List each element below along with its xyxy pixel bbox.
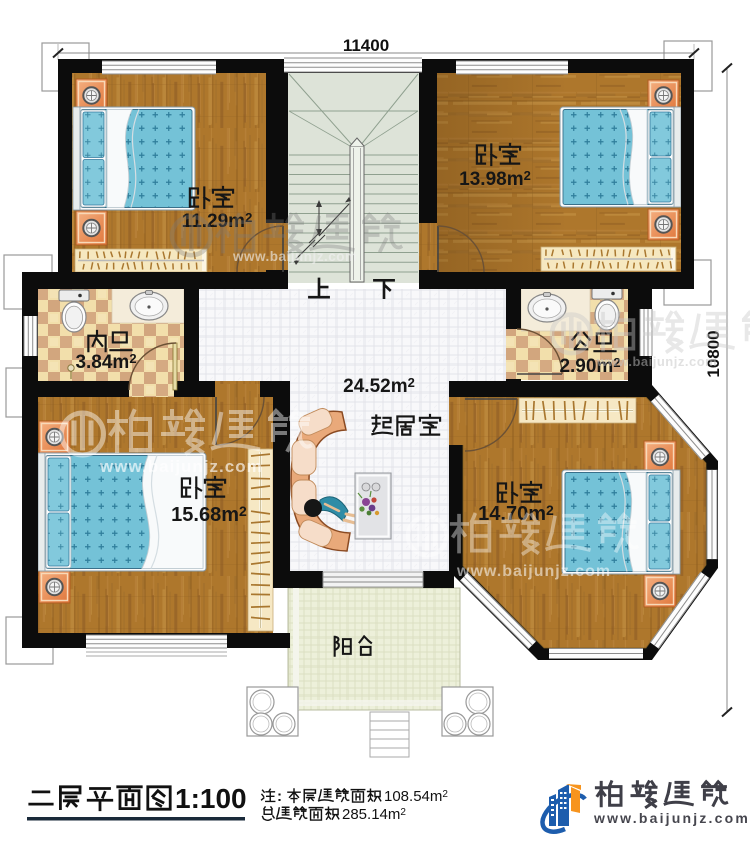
svg-text:www.baijunjz.com: www.baijunjz.com bbox=[456, 563, 611, 580]
svg-text:www.baijunjz.com: www.baijunjz.com bbox=[99, 457, 263, 476]
svg-text:www.baijunjz.com: www.baijunjz.com bbox=[232, 249, 358, 264]
svg-text:1:100: 1:100 bbox=[175, 783, 247, 814]
svg-text:www.baijunjz.com: www.baijunjz.com bbox=[593, 810, 750, 826]
svg-text:24.52m2: 24.52m2 bbox=[343, 375, 415, 397]
svg-text:13.98m2: 13.98m2 bbox=[459, 168, 531, 190]
svg-text:15.68m2: 15.68m2 bbox=[171, 503, 247, 526]
svg-text:285.14m2: 285.14m2 bbox=[342, 806, 406, 823]
svg-text:108.54m2: 108.54m2 bbox=[384, 788, 448, 805]
svg-text:www.baijunjz.com: www.baijunjz.com bbox=[596, 354, 717, 369]
svg-text:3.84m2: 3.84m2 bbox=[75, 351, 136, 373]
svg-text::: : bbox=[277, 788, 282, 805]
svg-text:11400: 11400 bbox=[343, 36, 389, 55]
